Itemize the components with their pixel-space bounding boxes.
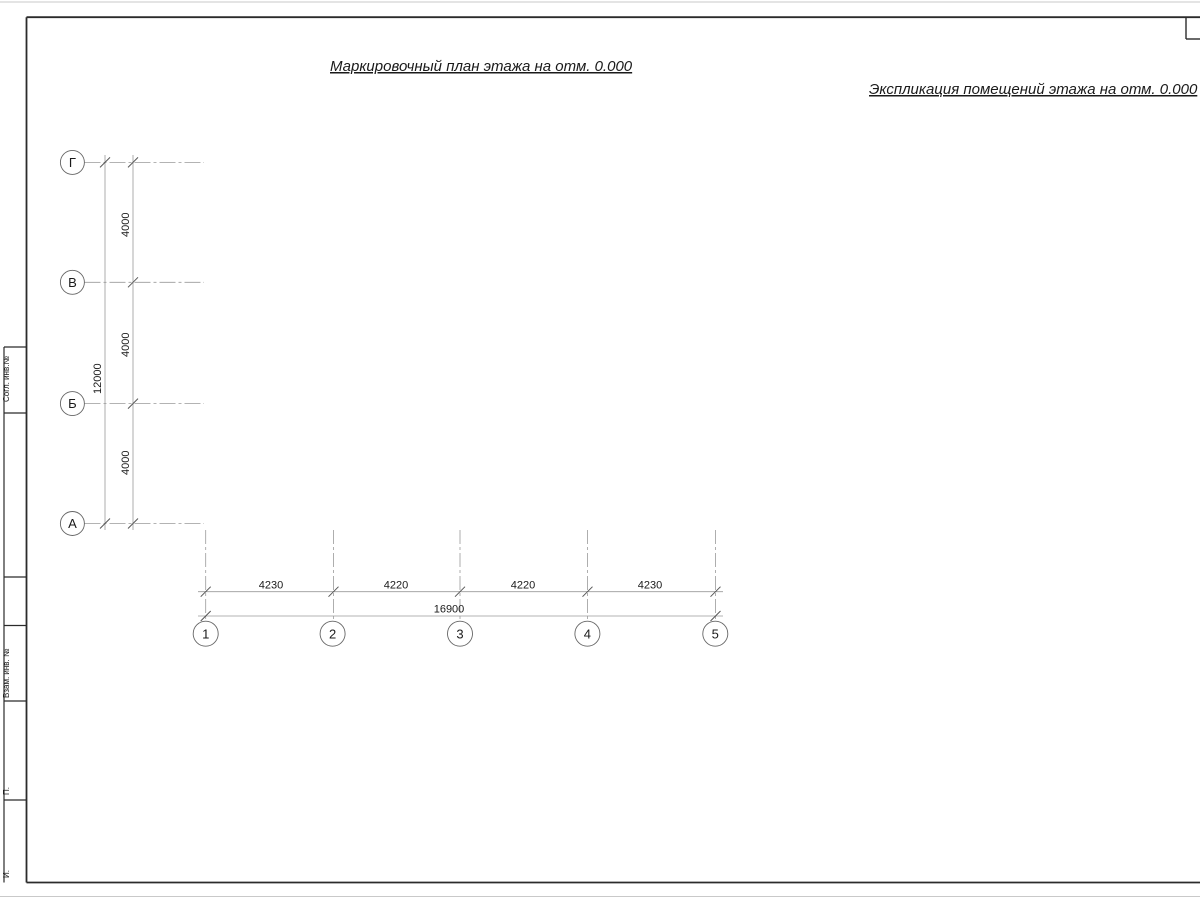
svg-text:А: А: [68, 516, 77, 531]
svg-text:4: 4: [584, 626, 591, 641]
svg-text:4000: 4000: [120, 213, 132, 237]
svg-text:3: 3: [456, 626, 463, 641]
svg-text:Б: Б: [68, 396, 77, 411]
svg-text:П.: П.: [2, 787, 11, 795]
svg-text:Взам. инв. №: Взам. инв. №: [2, 648, 11, 698]
svg-text:2: 2: [329, 626, 336, 641]
svg-text:И.: И.: [2, 870, 11, 878]
svg-text:4230: 4230: [638, 580, 662, 592]
svg-text:4000: 4000: [120, 333, 132, 357]
svg-text:Г: Г: [69, 155, 76, 170]
svg-text:Экспликация помещений этажа на: Экспликация помещений этажа на отм. 0.00…: [869, 81, 1198, 98]
svg-text:Согл. инв.№: Согл. инв.№: [2, 356, 11, 402]
svg-text:12000: 12000: [92, 363, 104, 394]
svg-text:4230: 4230: [259, 580, 283, 592]
svg-text:В: В: [68, 275, 77, 290]
svg-text:1: 1: [202, 626, 209, 641]
svg-text:5: 5: [712, 626, 719, 641]
svg-text:4220: 4220: [511, 580, 535, 592]
svg-text:4220: 4220: [384, 580, 408, 592]
svg-text:16900: 16900: [434, 604, 465, 616]
svg-text:Маркировочный план этажа на от: Маркировочный план этажа на отм. 0.000: [330, 58, 633, 75]
svg-text:4000: 4000: [120, 451, 132, 475]
